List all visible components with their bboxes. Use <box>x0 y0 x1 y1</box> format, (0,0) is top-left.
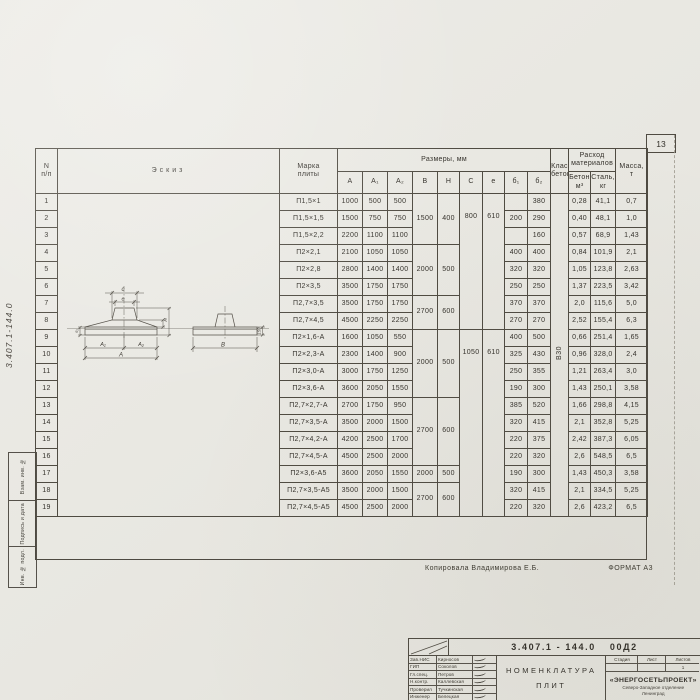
cell-H-value: 600 <box>442 308 455 315</box>
cell-mark: П2,7×3,5-А <box>280 415 338 432</box>
cell-B: 2000 <box>413 245 438 296</box>
cell-steel: 263,4 <box>591 364 616 381</box>
cell-concrete: 2,42 <box>569 432 591 449</box>
cell-mass: 6,3 <box>616 313 648 330</box>
sheets-total-value: 1 <box>666 664 699 672</box>
cell-A1: 1750 <box>363 398 388 415</box>
organization-city: Ленинград <box>642 691 665 697</box>
cell-b1: 270 <box>505 313 528 330</box>
cell-num: 8 <box>36 313 58 330</box>
cell-concrete-class: В30 <box>551 194 569 517</box>
cell-mass: 6,5 <box>616 500 648 517</box>
cell-b2: 320 <box>528 449 551 466</box>
cell-A: 4500 <box>338 313 363 330</box>
cell-steel: 298,8 <box>591 398 616 415</box>
cell-A: 3500 <box>338 415 363 432</box>
cell-b1: 400 <box>505 330 528 347</box>
cell-e-value: 610 <box>483 349 504 357</box>
cell-concrete: 0,96 <box>569 347 591 364</box>
signature-grid: Зав.НИСКирносовГИПСоколовГл.спец.ПетровН… <box>409 656 497 700</box>
cell-b1: 200 <box>505 211 528 228</box>
corner-scribble <box>409 639 449 655</box>
cell-num: 11 <box>36 364 58 381</box>
signer-name: Каллевская <box>437 679 473 687</box>
cell-concrete: 0,66 <box>569 330 591 347</box>
signer-role: Проверил <box>409 686 437 694</box>
cell-mark: П2,7×4,2-А <box>280 432 338 449</box>
cell-A2: 2000 <box>388 500 413 517</box>
signature-mark <box>473 686 497 694</box>
cell-A1: 1100 <box>363 228 388 245</box>
concrete-class-value: В30 <box>556 346 564 360</box>
cell-steel: 334,5 <box>591 483 616 500</box>
cell-steel: 115,6 <box>591 296 616 313</box>
cell-mass: 4,15 <box>616 398 648 415</box>
cell-B-value: 2700 <box>417 495 434 502</box>
cell-mark: П2×3,5 <box>280 279 338 296</box>
cell-A2: 1550 <box>388 466 413 483</box>
cell-mark: П2×3,6-А5 <box>280 466 338 483</box>
cell-num: 13 <box>36 398 58 415</box>
doc-number: 3.407.1 - 144.0 <box>511 642 596 652</box>
cell-A2: 1500 <box>388 415 413 432</box>
dim-label-a: A <box>118 353 123 359</box>
cell-num: 10 <box>36 347 58 364</box>
cell-A: 3500 <box>338 296 363 313</box>
dim-label-c: c <box>122 287 125 293</box>
cell-A: 2800 <box>338 262 363 279</box>
cell-A2: 1250 <box>388 364 413 381</box>
cell-b2: 400 <box>528 245 551 262</box>
cell-mark: П2×2,3-А <box>280 347 338 364</box>
cell-b1: 400 <box>505 245 528 262</box>
cell-num: 19 <box>36 500 58 517</box>
cell-num: 12 <box>36 381 58 398</box>
cell-concrete: 0,57 <box>569 228 591 245</box>
cell-B: 2000 <box>413 330 438 398</box>
cell-C: 800 <box>460 194 483 330</box>
signer-name: Петров <box>437 671 473 679</box>
cell-concrete: 1,66 <box>569 398 591 415</box>
cell-b1: 320 <box>505 483 528 500</box>
cell-steel: 387,3 <box>591 432 616 449</box>
signer-role: ГИП <box>409 664 437 672</box>
cell-b1: 250 <box>505 364 528 381</box>
scanned-drawing-sheet: 13 3.407.1-144.0 Взам. инв. № Подпись и … <box>0 0 700 700</box>
stage-value-empty2 <box>638 664 666 672</box>
cell-B: 2700 <box>413 296 438 330</box>
cell-B-value: 2000 <box>417 266 434 273</box>
stage-grid: Стадия Лист Листов 1 <box>606 656 700 672</box>
cell-A1: 1750 <box>363 364 388 381</box>
cell-concrete: 0,40 <box>569 211 591 228</box>
cell-steel: 155,4 <box>591 313 616 330</box>
cell-A2: 1100 <box>388 228 413 245</box>
cell-mass: 1,43 <box>616 228 648 245</box>
cell-steel: 101,9 <box>591 245 616 262</box>
cell-H-value: 600 <box>442 495 455 502</box>
signer-name: Соколов <box>437 664 473 672</box>
cell-b1 <box>505 228 528 245</box>
cell-A1: 2250 <box>363 313 388 330</box>
doc-code: 00Д2 <box>610 642 638 652</box>
cell-b2: 500 <box>528 330 551 347</box>
dim-label-150: 150 <box>257 327 262 335</box>
signature-scribble <box>473 694 486 700</box>
cell-mass: 3,58 <box>616 381 648 398</box>
sheet-number-box: 13 <box>646 134 676 153</box>
col-header-e: e <box>483 172 505 194</box>
cell-mark: П2,7×4,5-А5 <box>280 500 338 517</box>
cell-A1: 500 <box>363 194 388 211</box>
title-block-corner <box>409 639 449 655</box>
cell-A: 2300 <box>338 347 363 364</box>
cell-A2: 550 <box>388 330 413 347</box>
col-header-num: N п/п <box>36 149 58 194</box>
cell-A: 2100 <box>338 245 363 262</box>
sheet-number: 13 <box>656 139 665 149</box>
cell-num: 2 <box>36 211 58 228</box>
cell-num: 18 <box>36 483 58 500</box>
cell-A2: 950 <box>388 398 413 415</box>
cell-H-value: 500 <box>442 470 455 477</box>
signer-role: Зав.НИС <box>409 656 437 664</box>
signature-mark <box>473 671 497 679</box>
stage-value-empty1 <box>606 664 638 672</box>
sheet-edge-mark <box>674 135 675 585</box>
cell-concrete: 1,37 <box>569 279 591 296</box>
cell-b2: 355 <box>528 364 551 381</box>
cell-H: 600 <box>438 296 460 330</box>
cell-b2: 380 <box>528 194 551 211</box>
cell-steel: 41,1 <box>591 194 616 211</box>
cell-H: 500 <box>438 245 460 296</box>
cell-b1: 220 <box>505 432 528 449</box>
cell-concrete: 2,1 <box>569 483 591 500</box>
cell-concrete: 2,6 <box>569 500 591 517</box>
cell-A: 4200 <box>338 432 363 449</box>
col-header-b1: б₁ <box>505 172 528 194</box>
dim-label-a2: A₂ <box>137 342 145 348</box>
cell-A2: 500 <box>388 194 413 211</box>
cell-B: 2700 <box>413 398 438 466</box>
col-header-C: C <box>460 172 483 194</box>
cell-H: 500 <box>438 330 460 398</box>
cell-steel: 68,9 <box>591 228 616 245</box>
cell-H: 600 <box>438 483 460 517</box>
cell-A: 1500 <box>338 211 363 228</box>
cell-steel: 123,8 <box>591 262 616 279</box>
cell-steel: 251,4 <box>591 330 616 347</box>
cell-A1: 1400 <box>363 262 388 279</box>
cell-B-value: 2700 <box>417 427 434 434</box>
signature-scribble <box>473 664 486 670</box>
cell-A: 3600 <box>338 381 363 398</box>
cell-A: 3500 <box>338 483 363 500</box>
stamp-podpis-data: Подпись и дата <box>8 500 37 546</box>
organization-name: «ЭНЕРГОСЕТЬПРОЕКТ» <box>610 677 697 685</box>
cell-A2: 2000 <box>388 449 413 466</box>
cell-mark: П1,5×1,5 <box>280 211 338 228</box>
cell-A: 2200 <box>338 228 363 245</box>
cell-concrete: 1,43 <box>569 466 591 483</box>
cell-mark: П2×3,0-А <box>280 364 338 381</box>
cell-A1: 2500 <box>363 432 388 449</box>
cell-A2: 1550 <box>388 381 413 398</box>
cell-b2: 270 <box>528 313 551 330</box>
cell-steel: 450,3 <box>591 466 616 483</box>
cell-b1: 370 <box>505 296 528 313</box>
signature-mark <box>473 694 497 700</box>
cell-b1: 190 <box>505 466 528 483</box>
cell-B-value: 1500 <box>417 215 434 222</box>
cell-A: 2700 <box>338 398 363 415</box>
cell-A: 3600 <box>338 466 363 483</box>
cell-b2: 290 <box>528 211 551 228</box>
cell-mark: П2,7×2,7-А <box>280 398 338 415</box>
cell-concrete: 1,05 <box>569 262 591 279</box>
margin-doc-label: 3.407.1-144.0 <box>4 248 14 368</box>
signature-scribble <box>473 656 486 662</box>
cell-B: 2000 <box>413 466 438 483</box>
cell-mass: 6,05 <box>616 432 648 449</box>
cell-concrete: 2,6 <box>569 449 591 466</box>
cell-A2: 1750 <box>388 279 413 296</box>
signer-name: Тучкинская <box>437 686 473 694</box>
cell-A1: 2000 <box>363 415 388 432</box>
cell-b1: 325 <box>505 347 528 364</box>
cell-num: 14 <box>36 415 58 432</box>
col-header-A2: A₂ <box>388 172 413 194</box>
cell-A: 1600 <box>338 330 363 347</box>
cell-mass: 5,0 <box>616 296 648 313</box>
col-header-concrete-class: Класс бетона <box>551 149 569 194</box>
cell-mass: 6,5 <box>616 449 648 466</box>
cell-steel: 48,1 <box>591 211 616 228</box>
cell-A1: 2050 <box>363 466 388 483</box>
cell-b2: 320 <box>528 262 551 279</box>
copy-note: Копировала Владимирова Е.Б. <box>425 565 539 572</box>
dim-label-b: B <box>221 343 225 349</box>
col-header-sketch: Эскиз <box>58 149 280 194</box>
cell-num: 16 <box>36 449 58 466</box>
cell-e: 610 <box>483 194 505 330</box>
cell-b2: 160 <box>528 228 551 245</box>
cell-b2: 415 <box>528 483 551 500</box>
cell-b2: 250 <box>528 279 551 296</box>
cell-mass: 0,7 <box>616 194 648 211</box>
col-header-B: B <box>413 172 438 194</box>
signature-mark <box>473 679 497 687</box>
cell-steel: 223,5 <box>591 279 616 296</box>
margin-stamp-block: Взам. инв. № Подпись и дата Инв. № подл. <box>8 452 37 588</box>
cell-A: 1000 <box>338 194 363 211</box>
cell-concrete: 2,0 <box>569 296 591 313</box>
stage-col-listov: Листов <box>666 656 699 664</box>
cell-num: 6 <box>36 279 58 296</box>
cell-H: 600 <box>438 398 460 466</box>
cell-A2: 2250 <box>388 313 413 330</box>
cell-H-value: 500 <box>442 359 455 366</box>
cell-concrete: 2,52 <box>569 313 591 330</box>
cell-mass: 5,25 <box>616 415 648 432</box>
signature-scribble <box>473 679 486 685</box>
cell-H-value: 500 <box>442 266 455 273</box>
cell-b1: 220 <box>505 449 528 466</box>
cell-mark: П2,7×4,5-А <box>280 449 338 466</box>
cell-e-value: 610 <box>483 213 504 221</box>
cell-concrete: 0,84 <box>569 245 591 262</box>
cell-B-value: 2000 <box>417 470 434 477</box>
cell-A1: 1050 <box>363 245 388 262</box>
cell-mark: П2×3,6-А <box>280 381 338 398</box>
cell-mass: 5,25 <box>616 483 648 500</box>
cell-mark: П2×2,8 <box>280 262 338 279</box>
signer-role: Н.контр. <box>409 679 437 687</box>
col-header-concrete: Бетон, м³ <box>569 172 591 194</box>
cell-concrete: 1,43 <box>569 381 591 398</box>
cell-A2: 900 <box>388 347 413 364</box>
cell-H-value: 600 <box>442 427 455 434</box>
signer-role: Инженер <box>409 694 437 700</box>
drawing-title: Номенклатура плит <box>497 656 606 700</box>
cell-C-value: 1050 <box>460 349 482 357</box>
cell-steel: 328,0 <box>591 347 616 364</box>
cell-b1: 190 <box>505 381 528 398</box>
dim-label-b2-edge: б₂ <box>74 329 79 333</box>
cell-A2: 1700 <box>388 432 413 449</box>
cell-A: 4500 <box>338 449 363 466</box>
cell-num: 3 <box>36 228 58 245</box>
col-header-H: H <box>438 172 460 194</box>
cell-mark: П1,5×2,2 <box>280 228 338 245</box>
cell-B: 2700 <box>413 483 438 517</box>
signer-name: Белецкая <box>437 694 473 700</box>
cell-b2: 375 <box>528 432 551 449</box>
cell-b1: 320 <box>505 415 528 432</box>
cell-H: 400 <box>438 194 460 245</box>
cell-concrete: 2,1 <box>569 415 591 432</box>
cell-mass: 3,42 <box>616 279 648 296</box>
cell-steel: 352,8 <box>591 415 616 432</box>
cell-mark: П2×2,1 <box>280 245 338 262</box>
cell-num: 17 <box>36 466 58 483</box>
cell-A: 4500 <box>338 500 363 517</box>
cell-C: 1050 <box>460 330 483 517</box>
signature-scribble <box>473 671 486 677</box>
signature-mark <box>473 664 497 672</box>
cell-A1: 1750 <box>363 296 388 313</box>
cell-b2: 415 <box>528 415 551 432</box>
cell-e: 610 <box>483 330 505 517</box>
stamp-vzam-inv: Взам. инв. № <box>8 452 37 500</box>
stamp-inv-podl: Инв. № подл. <box>8 546 37 588</box>
cell-b2: 320 <box>528 500 551 517</box>
plate-sketch-drawing: c e A₁ A₂ A B H б₂ 150 <box>57 270 279 370</box>
cell-A1: 1050 <box>363 330 388 347</box>
cell-mass: 3,58 <box>616 466 648 483</box>
cell-A1: 2000 <box>363 483 388 500</box>
cell-steel: 250,1 <box>591 381 616 398</box>
col-header-mark: Марка плиты <box>280 149 338 194</box>
cell-concrete: 1,21 <box>569 364 591 381</box>
cell-A2: 1500 <box>388 483 413 500</box>
cell-A1: 2500 <box>363 449 388 466</box>
cell-A1: 750 <box>363 211 388 228</box>
col-header-A1: A₁ <box>363 172 388 194</box>
col-header-b2: б₂ <box>528 172 551 194</box>
cell-A: 3500 <box>338 279 363 296</box>
cell-mark: П1,5×1 <box>280 194 338 211</box>
cell-H-value: 400 <box>442 215 455 222</box>
cell-mark: П2,7×3,5-А5 <box>280 483 338 500</box>
cell-B-value: 2000 <box>417 359 434 366</box>
cell-mass: 3,0 <box>616 364 648 381</box>
title-block: 3.407.1 - 144.0 00Д2 Зав.НИСКирносовГИПС… <box>408 638 700 700</box>
col-header-steel: Сталь, кг <box>591 172 616 194</box>
cell-B: 1500 <box>413 194 438 245</box>
cell-A1: 1750 <box>363 279 388 296</box>
cell-mark: П2,7×4,5 <box>280 313 338 330</box>
cell-mass: 2,1 <box>616 245 648 262</box>
cell-b1 <box>505 194 528 211</box>
col-header-A: A <box>338 172 363 194</box>
dim-label-e: e <box>121 297 124 303</box>
cell-A1: 2500 <box>363 500 388 517</box>
cell-b1: 320 <box>505 262 528 279</box>
col-header-mass: Масса, т <box>616 149 648 194</box>
cell-b1: 385 <box>505 398 528 415</box>
cell-concrete: 0,28 <box>569 194 591 211</box>
cell-mark: П2,7×3,5 <box>280 296 338 313</box>
signature-scribble <box>473 686 486 692</box>
cell-C-value: 800 <box>460 213 482 221</box>
cell-mass: 2,63 <box>616 262 648 279</box>
cell-num: 15 <box>36 432 58 449</box>
cell-b2: 300 <box>528 381 551 398</box>
cell-A2: 1050 <box>388 245 413 262</box>
cell-mass: 1,0 <box>616 211 648 228</box>
dim-label-a1: A₁ <box>99 342 106 348</box>
cell-A: 3000 <box>338 364 363 381</box>
dim-label-h: H <box>163 318 168 322</box>
format-note: ФОРМАТ А3 <box>608 565 653 572</box>
cell-num: 1 <box>36 194 58 211</box>
cell-steel: 548,5 <box>591 449 616 466</box>
cell-b1: 220 <box>505 500 528 517</box>
cell-b2: 300 <box>528 466 551 483</box>
stage-col-stadiya: Стадия <box>606 656 638 664</box>
cell-b1: 250 <box>505 279 528 296</box>
cell-b2: 520 <box>528 398 551 415</box>
cell-num: 5 <box>36 262 58 279</box>
cell-num: 4 <box>36 245 58 262</box>
cell-b2: 430 <box>528 347 551 364</box>
signer-name: Кирносов <box>437 656 473 664</box>
cell-mass: 2,4 <box>616 347 648 364</box>
cell-num: 9 <box>36 330 58 347</box>
cell-b2: 370 <box>528 296 551 313</box>
cell-A1: 2050 <box>363 381 388 398</box>
col-header-dims-group: Размеры, мм <box>338 149 551 172</box>
cell-A2: 750 <box>388 211 413 228</box>
cell-mark: П2×1,6-А <box>280 330 338 347</box>
cell-mass: 1,65 <box>616 330 648 347</box>
col-header-materials-group: Расход материалов <box>569 149 616 172</box>
table-row: 1П1,5×110005005001500400800610380В300,28… <box>36 194 648 211</box>
signer-role: Гл.спец. <box>409 671 437 679</box>
signature-mark <box>473 656 497 664</box>
